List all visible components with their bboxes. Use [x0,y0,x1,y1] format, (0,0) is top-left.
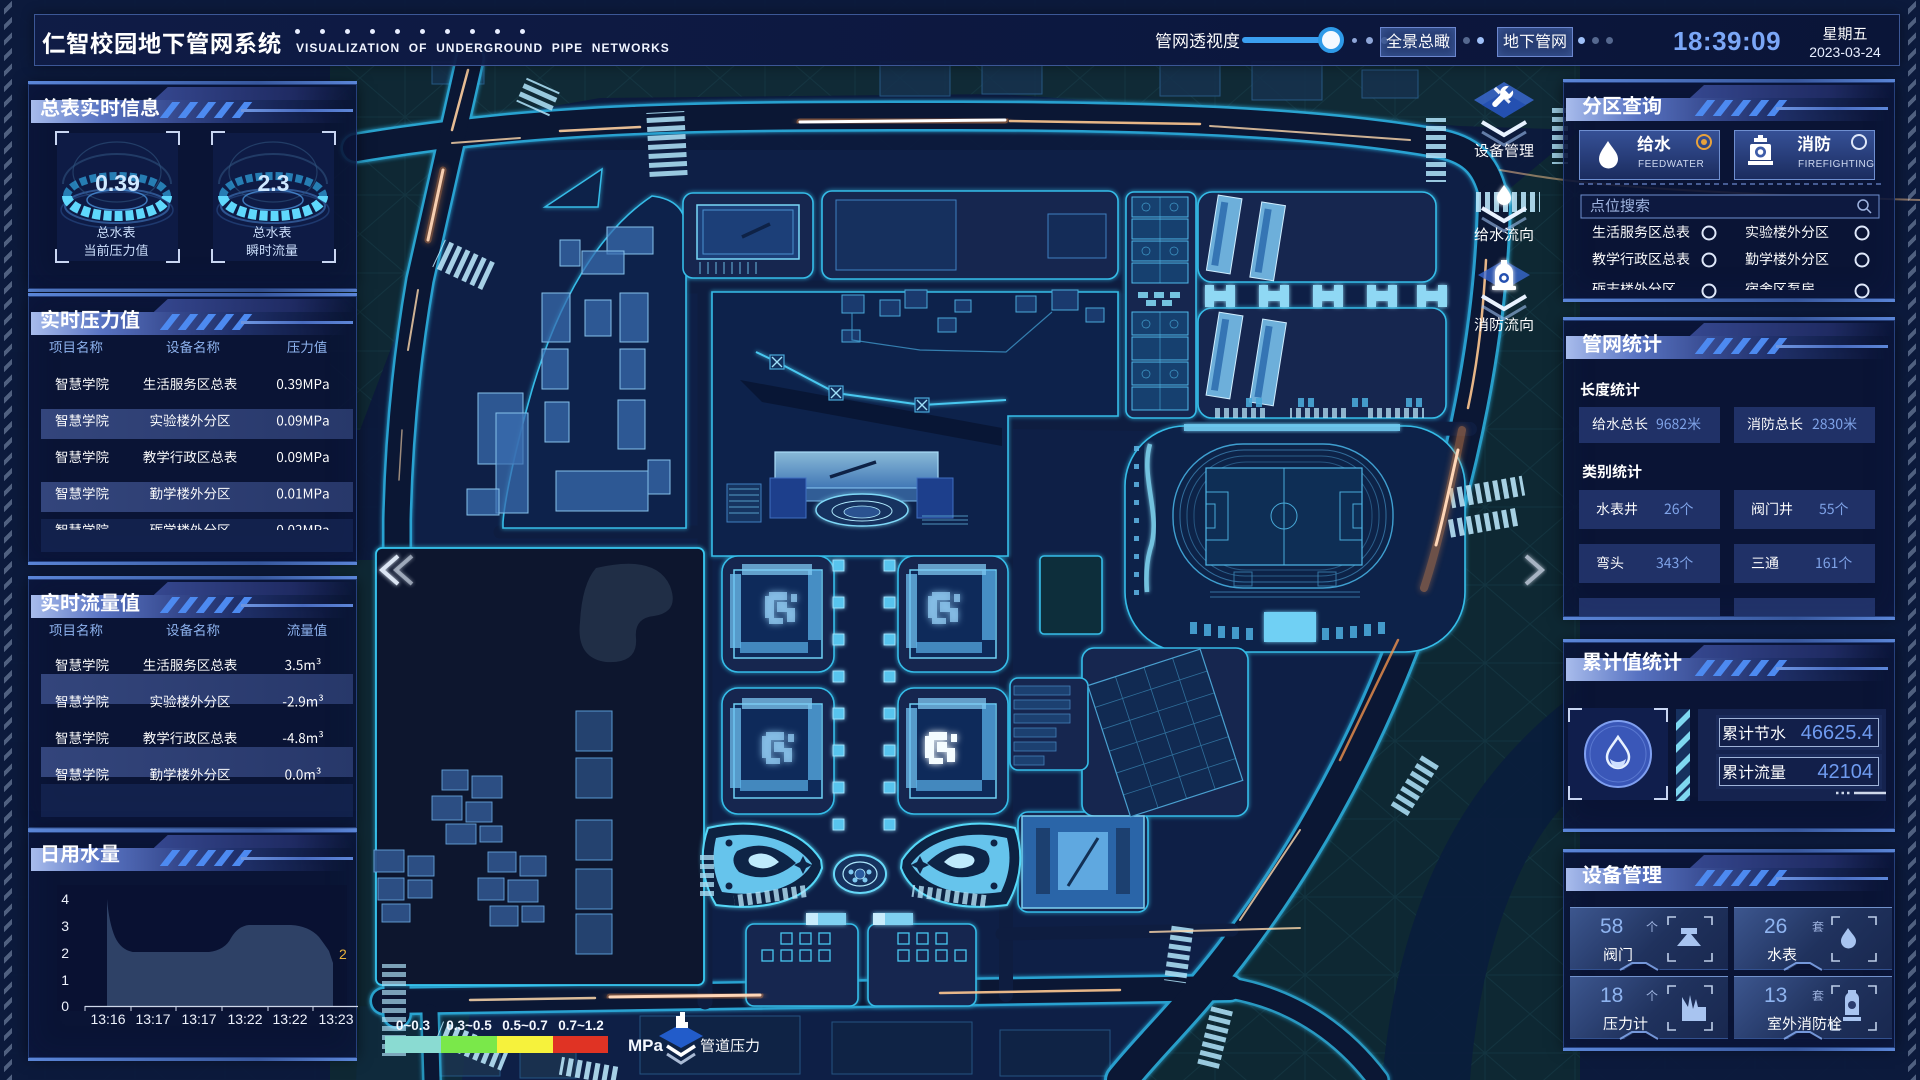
svg-text:13:17: 13:17 [181,1011,216,1027]
svg-text:13:23: 13:23 [318,1011,353,1027]
svg-text:0.3~0.5: 0.3~0.5 [446,1018,492,1033]
svg-text:0: 0 [61,998,69,1014]
svg-text:0~0.3: 0~0.3 [396,1018,431,1033]
svg-text:MPa: MPa [628,1036,664,1055]
svg-text:2: 2 [339,946,347,962]
svg-text:4: 4 [61,891,69,907]
svg-text:13:22: 13:22 [227,1011,262,1027]
svg-text:0.5~0.7: 0.5~0.7 [502,1018,547,1033]
svg-text:1: 1 [61,972,69,988]
svg-text:3: 3 [61,918,69,934]
svg-text:13:16: 13:16 [90,1011,125,1027]
svg-text:0.7~1.2: 0.7~1.2 [558,1018,603,1033]
svg-text:13:17: 13:17 [135,1011,170,1027]
svg-text:2: 2 [61,945,69,961]
svg-text:13:22: 13:22 [272,1011,307,1027]
